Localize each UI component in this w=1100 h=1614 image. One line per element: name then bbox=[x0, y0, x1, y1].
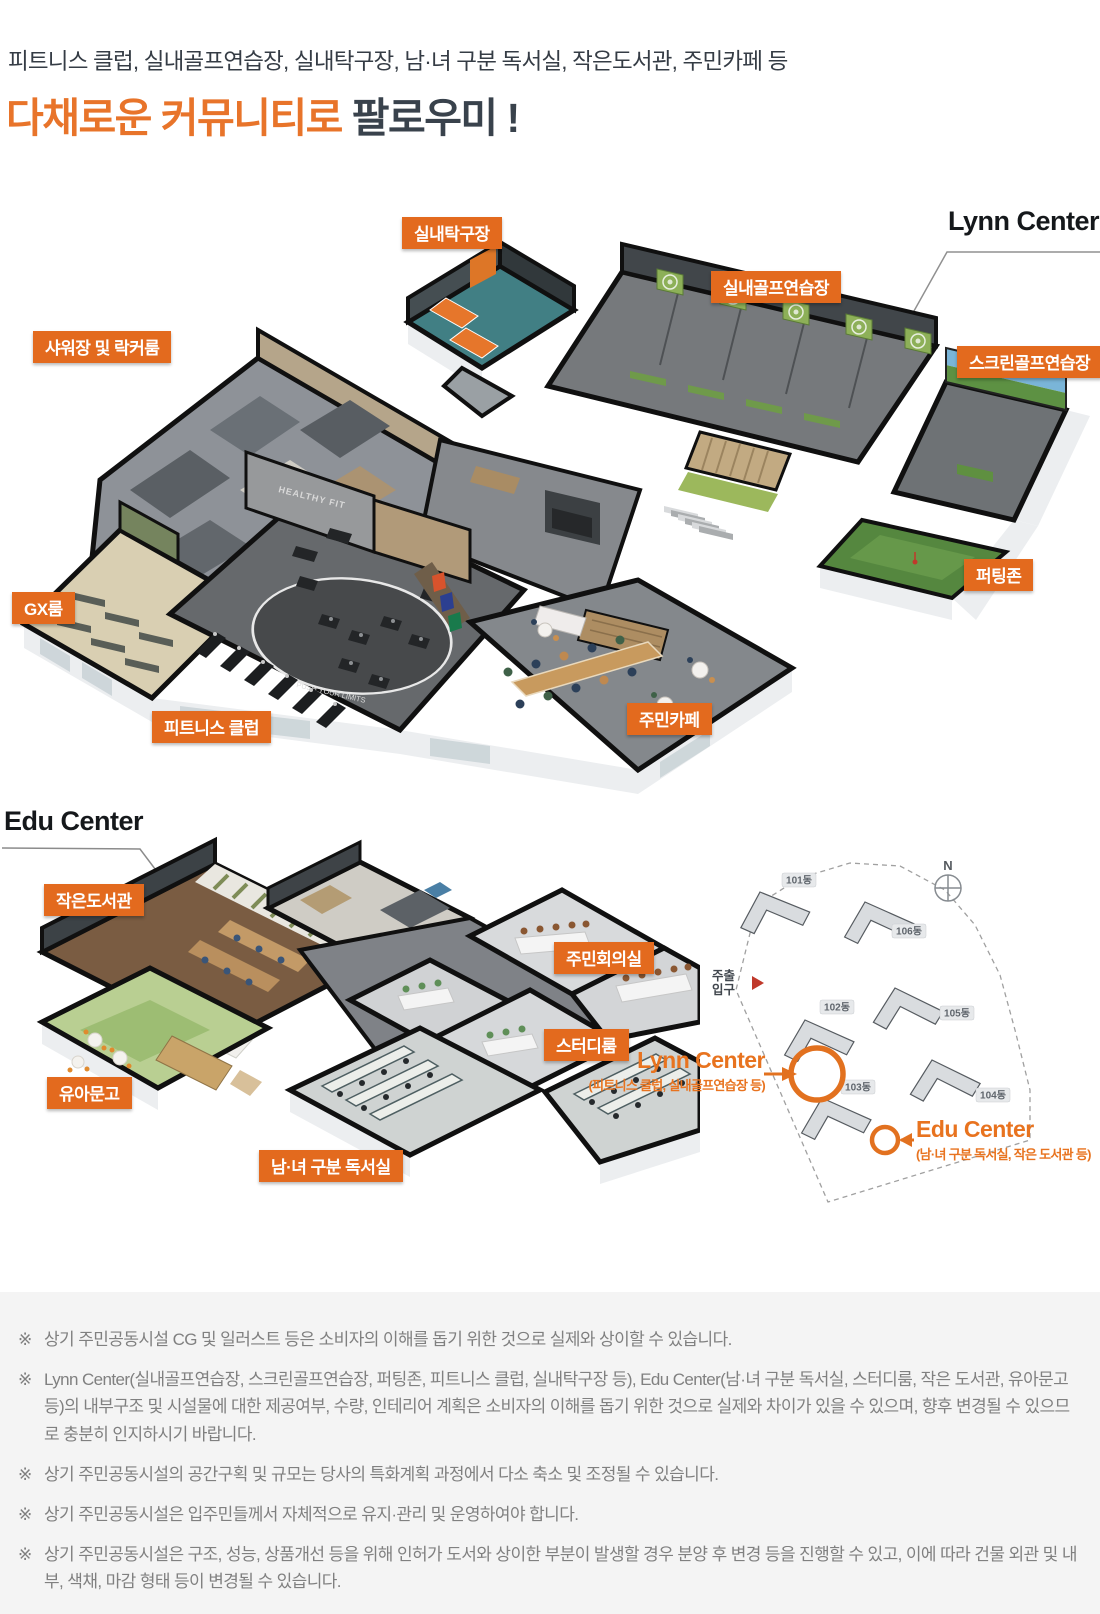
page-title-accent: 다채로운 커뮤니티로 bbox=[6, 95, 342, 141]
page-subtitle: 피트니스 클럽, 실내골프연습장, 실내탁구장, 남·녀 구분 독서실, 작은도… bbox=[8, 44, 788, 76]
compass-icon bbox=[935, 875, 961, 901]
lynn-center-marker bbox=[764, 1048, 843, 1100]
edu-floor-plan bbox=[0, 790, 700, 1210]
label-fitness-club: 피트니스 클럽 bbox=[152, 711, 271, 743]
note-marker: ※ bbox=[18, 1366, 32, 1393]
building-101 bbox=[740, 890, 811, 941]
note-text: Lynn Center(실내골프연습장, 스크린골프연습장, 퍼팅존, 피트니스… bbox=[44, 1370, 1070, 1443]
disclaimer-notes: ※ 상기 주민공동시설 CG 및 일러스트 등은 소비자의 이해를 돕기 위한 … bbox=[0, 1292, 1100, 1614]
building-103 bbox=[801, 1096, 873, 1149]
note-item-5: ※ 상기 주민공동시설은 구조, 성능, 상품개선 등을 위해 인허가 도서와 … bbox=[18, 1541, 1082, 1595]
badge-102: 102동 bbox=[824, 1002, 850, 1014]
badge-103: 103동 bbox=[845, 1082, 871, 1094]
main-entrance: 주출 입구 bbox=[712, 968, 764, 997]
note-item-2: ※ Lynn Center(실내골프연습장, 스크린골프연습장, 퍼팅존, 피트… bbox=[18, 1366, 1082, 1448]
main-entrance-line2: 입구 bbox=[712, 983, 736, 997]
edu-annotation-subtitle: (남·녀 구분 독서실, 작은 도서관 등) bbox=[916, 1144, 1100, 1163]
lynn-annotation-title: Lynn Center bbox=[553, 1048, 765, 1072]
badge-105: 105동 bbox=[944, 1008, 970, 1020]
stairs bbox=[664, 506, 733, 540]
note-item-1: ※ 상기 주민공동시설 CG 및 일러스트 등은 소비자의 이해를 돕기 위한 … bbox=[18, 1326, 1082, 1353]
edu-center-heading: Edu Center bbox=[4, 806, 143, 837]
badge-101: 101동 bbox=[786, 875, 812, 887]
label-reading-room: 남·녀 구분 독서실 bbox=[259, 1150, 403, 1182]
label-table-tennis: 실내탁구장 bbox=[402, 217, 502, 249]
page-title-rest: 팔로우미 ! bbox=[342, 95, 519, 141]
note-marker: ※ bbox=[18, 1326, 32, 1353]
lynn-center-annotation: Lynn Center (피트니스 클럽, 실내골프연습장 등) bbox=[553, 1048, 765, 1094]
page-title: 다채로운 커뮤니티로 팔로우미 ! bbox=[6, 84, 519, 144]
label-indoor-golf: 실내골프연습장 bbox=[711, 271, 841, 303]
edu-center-marker bbox=[872, 1127, 914, 1153]
lynn-annotation-subtitle: (피트니스 클럽, 실내골프연습장 등) bbox=[553, 1075, 765, 1094]
label-screen-golf: 스크린골프연습장 bbox=[957, 346, 1100, 378]
note-text: 상기 주민공동시설은 입주민들께서 자체적으로 유지·관리 및 운영하여야 합니… bbox=[44, 1505, 578, 1524]
building-105 bbox=[873, 985, 946, 1040]
label-gx-room: GX룸 bbox=[12, 592, 75, 624]
building-104 bbox=[910, 1057, 983, 1112]
building-badges: 101동 106동 102동 105동 103동 104동 bbox=[782, 873, 1010, 1102]
main-entrance-line1: 주출 bbox=[712, 968, 736, 983]
label-shower-locker: 샤워장 및 락커룸 bbox=[33, 331, 171, 363]
label-putting-zone: 퍼팅존 bbox=[964, 559, 1033, 591]
badge-104: 104동 bbox=[980, 1090, 1006, 1102]
note-marker: ※ bbox=[18, 1541, 32, 1568]
note-item-3: ※ 상기 주민공동시설의 공간구획 및 규모는 당사의 특화계획 과정에서 다소… bbox=[18, 1461, 1082, 1488]
note-marker: ※ bbox=[18, 1501, 32, 1528]
note-text: 상기 주민공동시설 CG 및 일러스트 등은 소비자의 이해를 돕기 위한 것으… bbox=[44, 1330, 732, 1349]
note-marker: ※ bbox=[18, 1461, 32, 1488]
compass-n-label: N bbox=[943, 858, 952, 873]
label-cafe: 주민카페 bbox=[627, 703, 712, 735]
label-meeting-room: 주민회의실 bbox=[554, 942, 654, 974]
badge-106: 106동 bbox=[896, 926, 922, 938]
edu-center-annotation: Edu Center (남·녀 구분 독서실, 작은 도서관 등) bbox=[916, 1117, 1100, 1163]
label-small-library: 작은도서관 bbox=[44, 884, 144, 916]
edu-annotation-title: Edu Center bbox=[916, 1117, 1100, 1141]
note-text: 상기 주민공동시설은 구조, 성능, 상품개선 등을 위해 인허가 도서와 상이… bbox=[44, 1545, 1077, 1591]
entrance-arrow-icon bbox=[752, 976, 764, 990]
note-text: 상기 주민공동시설의 공간구획 및 규모는 당사의 특화계획 과정에서 다소 축… bbox=[44, 1465, 718, 1484]
label-kids-library: 유아문고 bbox=[47, 1077, 132, 1109]
note-item-4: ※ 상기 주민공동시설은 입주민들께서 자체적으로 유지·관리 및 운영하여야 … bbox=[18, 1501, 1082, 1528]
table-tennis-room bbox=[408, 242, 574, 416]
lynn-center-heading: Lynn Center bbox=[948, 206, 1099, 237]
